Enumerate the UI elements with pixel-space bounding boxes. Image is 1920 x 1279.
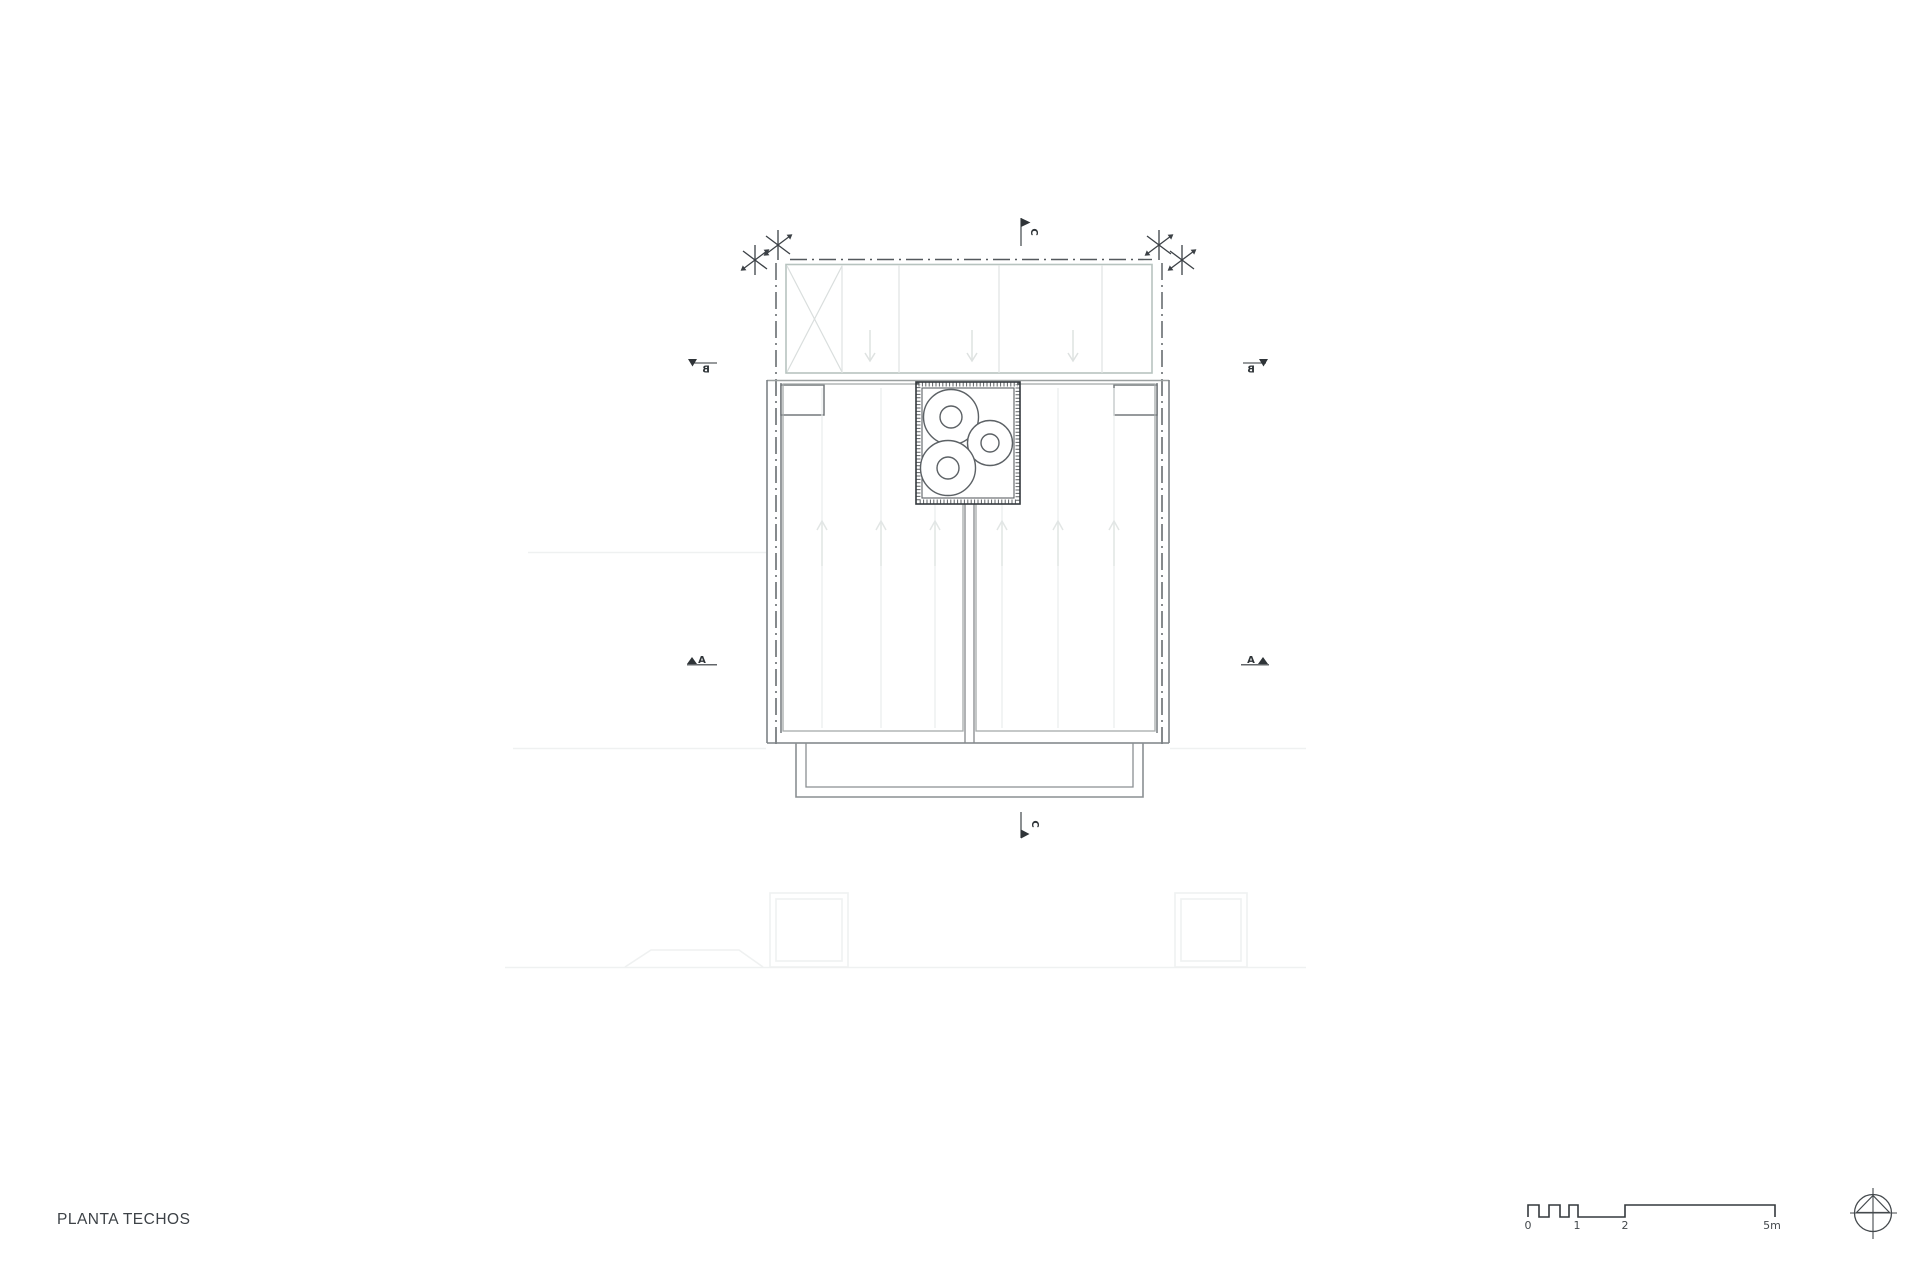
- slope-arrow-up: [876, 521, 886, 566]
- slope-arrow-up: [997, 521, 1007, 566]
- slope-arrow-up: [930, 521, 940, 566]
- page-title: PLANTA TECHOS: [57, 1211, 190, 1229]
- scale-bar: 0 1 2 5m: [1525, 1205, 1781, 1232]
- terrace-extension: [796, 743, 1143, 797]
- slope-arrow-down: [865, 330, 875, 361]
- section-label-a: A: [1247, 655, 1255, 666]
- north-arrow-icon: [1850, 1188, 1897, 1239]
- chimney-box-right: [1114, 385, 1157, 415]
- slope-arrow-down: [967, 330, 977, 361]
- slope-arrow-up: [817, 521, 827, 566]
- axis-markers: [741, 230, 1197, 275]
- drawing-sheet: B B A A C C 0 1: [0, 0, 1920, 1279]
- section-flag-icon: [1021, 830, 1030, 839]
- ghost-floor-below: [505, 553, 1306, 968]
- roof-overhang-strip: [786, 265, 1152, 374]
- axis-star-icon: [1168, 245, 1197, 275]
- skylight-vent-box: [916, 382, 1020, 504]
- section-marker-b-left: B: [688, 359, 717, 376]
- section-label-b: B: [1247, 365, 1255, 376]
- section-marker-a-right: A: [1241, 655, 1269, 666]
- axis-star-icon: [764, 230, 793, 260]
- section-flag-icon: [1021, 218, 1031, 227]
- scale-label-5m: 5m: [1763, 1219, 1781, 1232]
- ghost-ramp: [625, 950, 763, 967]
- ghost-pier-right: [1175, 893, 1247, 967]
- slope-arrow-down: [1068, 330, 1078, 361]
- section-arrow-icon: [687, 657, 697, 664]
- chimney-box-left: [781, 385, 824, 415]
- section-marker-c-bottom: C: [1021, 812, 1040, 839]
- section-marker-c-top: C: [1021, 218, 1039, 246]
- slope-arrow-up: [1109, 521, 1119, 566]
- x-brace-bay: [787, 266, 842, 372]
- ghost-pier-left: [770, 893, 848, 967]
- scale-label-0: 0: [1525, 1219, 1532, 1232]
- section-marker-a-left: A: [687, 655, 717, 666]
- scale-label-2: 2: [1622, 1219, 1629, 1232]
- scale-label-1: 1: [1574, 1219, 1581, 1232]
- section-marker-b-right: B: [1243, 359, 1268, 376]
- roof-plan-drawing: B B A A C C 0 1: [0, 0, 1920, 1279]
- slope-arrow-up: [1053, 521, 1063, 566]
- axis-star-icon: [741, 245, 770, 275]
- section-label-b: B: [702, 365, 710, 376]
- section-label-c: C: [1029, 820, 1040, 827]
- ridge-line: [965, 504, 974, 743]
- section-arrow-icon: [1258, 657, 1268, 664]
- section-label-c: C: [1028, 228, 1039, 235]
- axis-star-icon: [1145, 230, 1174, 260]
